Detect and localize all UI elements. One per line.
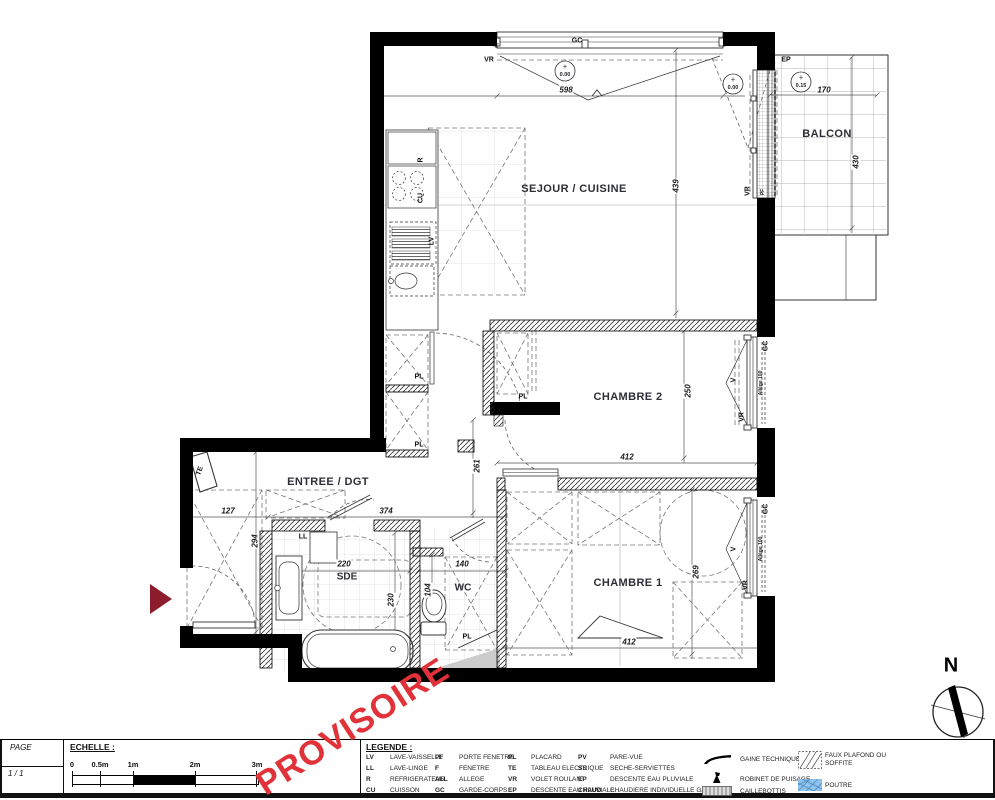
tag-pl-1: PL <box>415 374 424 381</box>
dim-261: 261 <box>473 458 482 473</box>
page-label: PAGE <box>10 743 32 752</box>
dim-439: 439 <box>672 178 681 193</box>
tag-lave-vaisselle: LV <box>429 237 436 245</box>
tag-vr-ch2: VR <box>739 412 746 422</box>
floor-grids <box>268 57 886 672</box>
room-label-chambre2: CHAMBRE 2 <box>594 391 663 403</box>
dim-127: 127 <box>220 507 235 516</box>
tag-allege-ch1: Allège 100 <box>758 537 764 562</box>
tag-gc-top: GC <box>572 38 583 45</box>
sliding-door-chambre1 <box>503 469 558 476</box>
room-label-sejour: SEJOUR / CUISINE <box>521 183 626 195</box>
dim-250: 250 <box>684 383 693 398</box>
tag-vr-ch1: VR <box>743 580 750 590</box>
room-label-wc: WC <box>455 583 472 594</box>
dim-140: 140 <box>454 560 469 569</box>
dim-220: 220 <box>336 560 351 569</box>
placard-sliding-door <box>430 332 434 384</box>
dim-230: 230 <box>387 592 396 607</box>
hob <box>388 166 436 208</box>
washing-machine <box>310 532 337 563</box>
poutre-icon <box>798 779 822 791</box>
tag-vr-pf: VR <box>745 186 752 196</box>
dim-170: 170 <box>816 86 831 95</box>
tag-vr-top: VR <box>484 57 494 64</box>
tag-pl-ch2: PL <box>519 394 528 401</box>
balcony-caillebottis-grid <box>770 57 886 233</box>
bed-symbol <box>578 616 663 638</box>
faux-plafond-icon <box>798 751 822 769</box>
tag-gc-ch2: GC <box>763 341 770 352</box>
tag-fridge: R <box>418 157 425 162</box>
dim-374: 374 <box>378 507 393 516</box>
north-letter: N <box>944 655 958 678</box>
top-window <box>494 32 725 100</box>
tag-gc-ch1: GC <box>763 504 770 515</box>
entrance-arrow <box>150 584 172 614</box>
north-needle <box>948 685 968 737</box>
sde-door-leaf <box>328 495 372 520</box>
room-label-entree: ENTREE / DGT <box>287 476 369 488</box>
tag-v-ch2: V <box>731 378 738 383</box>
title-block: PAGE 1 / 1 ECHELLE : 0 0.5m 1m 2m 3m LEG… <box>0 739 995 798</box>
page-value: 1 / 1 <box>8 769 24 778</box>
tableau-electrique <box>190 452 217 492</box>
dim-269: 269 <box>692 564 701 579</box>
caillebottis-icon <box>702 786 732 796</box>
entrance-door-leaf <box>193 622 255 628</box>
fridge <box>388 132 436 164</box>
dim-412-ch1: 412 <box>621 638 636 647</box>
tag-allege-ch2: Allège 100 <box>758 371 764 396</box>
poutre-beam <box>490 402 560 415</box>
robinet-puisage-icon <box>712 771 722 784</box>
echelle-label: ECHELLE : <box>70 742 115 752</box>
tag-pl-2: PL <box>415 442 424 449</box>
dim-430: 430 <box>852 154 861 169</box>
room-label-balcon: BALCON <box>802 128 851 140</box>
tag-f-top: F <box>495 44 499 50</box>
kitchen-counter <box>386 130 438 330</box>
room-label-sde: SDE <box>337 572 358 583</box>
entrance-door-arc <box>193 566 255 624</box>
tag-pl-wc: PL <box>463 634 472 641</box>
level-sejour: 0.00 <box>560 72 571 78</box>
gaine-technique-icon <box>703 753 733 765</box>
tag-cuisson: CU <box>418 193 425 203</box>
tag-lave-linge: LL <box>299 534 308 541</box>
level-balcon: 0.15 <box>796 83 807 89</box>
floor-plan-drawing <box>0 0 995 738</box>
floor-plan-page: SEJOUR / CUISINE BALCON CHAMBRE 2 CHAMBR… <box>0 0 995 800</box>
north-compass <box>931 685 985 738</box>
balcony-porte-fenetre <box>751 70 775 198</box>
dim-598: 598 <box>558 86 573 95</box>
dim-104: 104 <box>424 582 433 597</box>
tag-pf: PF <box>760 189 766 195</box>
level-logement: 0.00 <box>728 85 739 91</box>
tag-ep: EP <box>781 57 790 64</box>
washbasin <box>275 556 302 620</box>
tag-v-ch1: V <box>731 547 738 552</box>
dim-294: 294 <box>251 533 260 548</box>
room-label-chambre1: CHAMBRE 1 <box>594 577 663 589</box>
legende-title: LEGENDE : <box>366 742 412 752</box>
dim-412-ch2: 412 <box>619 453 634 462</box>
bathtub <box>302 630 413 672</box>
